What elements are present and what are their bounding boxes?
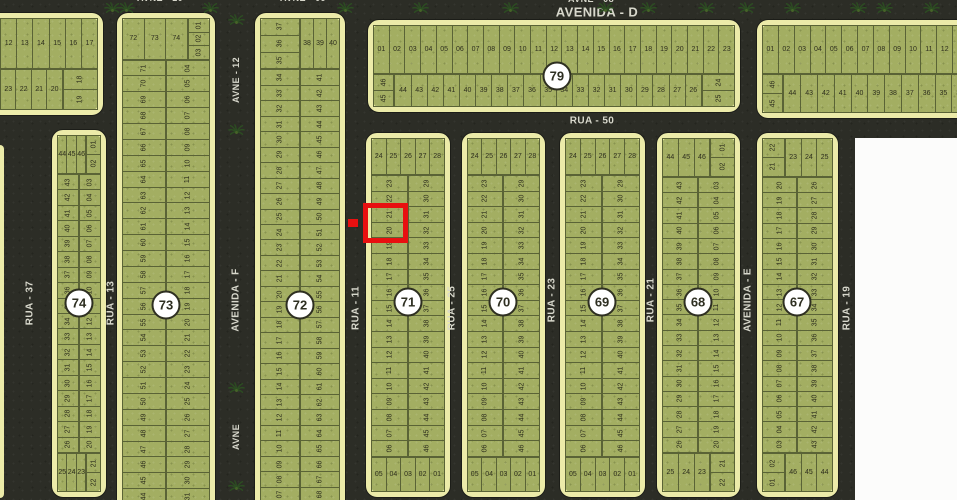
lot-cell[interactable]: 02	[416, 458, 431, 491]
lot-cell[interactable]: 17	[699, 392, 734, 407]
lot-cell[interactable]: 07	[372, 426, 407, 442]
lot-cell[interactable]: 20	[672, 26, 688, 73]
lot-cell[interactable]: 12	[699, 315, 734, 330]
lot-cell[interactable]: 26	[798, 178, 832, 193]
lot-cell[interactable]: 13	[261, 395, 299, 410]
lot-cell[interactable]: 29	[663, 392, 697, 407]
lot-cell[interactable]: 45	[763, 94, 782, 112]
lot-cell[interactable]: 12	[468, 348, 502, 364]
lot-cell[interactable]: 15	[167, 235, 209, 251]
lot-cell[interactable]: 18	[64, 70, 97, 90]
lot-cell[interactable]: 46	[374, 75, 393, 91]
lot-cell[interactable]: 26	[261, 194, 299, 209]
lot-cell[interactable]: 27	[663, 422, 697, 437]
lot-cell[interactable]: 21	[688, 26, 704, 73]
lot-cell[interactable]: 12	[566, 348, 601, 364]
lot-cell[interactable]: 34	[663, 315, 697, 330]
lot-cell[interactable]: 11	[763, 315, 796, 330]
lot-cell[interactable]: 22	[704, 26, 720, 73]
lot-cell[interactable]: 41	[663, 208, 697, 223]
lot-cell[interactable]: 02	[763, 454, 784, 473]
lot-cell[interactable]: 43	[504, 394, 539, 410]
lot-cell[interactable]: 03	[596, 458, 611, 491]
lot-cell[interactable]: 44	[504, 410, 539, 426]
lot-cell[interactable]: 39	[663, 239, 697, 254]
lot-cell[interactable]: 28	[663, 407, 697, 422]
lot-cell[interactable]: 46	[504, 441, 539, 456]
lot-cell[interactable]: 11	[167, 172, 209, 188]
lot-cell[interactable]: 31	[504, 207, 539, 223]
lot-cell[interactable]: 18	[641, 26, 657, 73]
lot-cell[interactable]: 49	[123, 410, 165, 426]
lot-cell[interactable]: 14	[80, 345, 100, 360]
lot-cell[interactable]: 17	[372, 270, 407, 286]
lot-cell[interactable]: 23	[1, 70, 16, 109]
lot-cell[interactable]: 16	[699, 377, 734, 392]
lot-cell[interactable]: 28	[430, 139, 444, 174]
lot-cell[interactable]: 42	[798, 422, 832, 437]
lot-cell[interactable]: 13	[699, 331, 734, 346]
lot-cell[interactable]: 45	[409, 426, 444, 442]
lot-cell[interactable]: 31	[663, 361, 697, 376]
lot-cell[interactable]: 45	[504, 426, 539, 442]
lot-cell[interactable]: 64	[301, 426, 339, 441]
lot-cell[interactable]: 07	[858, 26, 874, 73]
lot-cell[interactable]: 45	[374, 91, 393, 106]
lot-cell[interactable]: 32	[58, 345, 78, 360]
lot-cell[interactable]: 31	[167, 489, 209, 500]
lot-cell[interactable]: 18	[468, 254, 502, 270]
lot-cell[interactable]: 48	[301, 179, 339, 194]
lot-cell[interactable]: 03	[795, 26, 811, 73]
lot-cell[interactable]: 09	[372, 394, 407, 410]
lot-cell[interactable]: 41	[409, 363, 444, 379]
lot-cell[interactable]: 27	[798, 193, 832, 208]
lot-cell[interactable]: 17	[261, 333, 299, 348]
lot-cell[interactable]: 06	[842, 26, 858, 73]
lot-cell[interactable]: 05	[167, 76, 209, 92]
lot-cell[interactable]: 28	[798, 208, 832, 223]
lot-cell[interactable]: 09	[261, 457, 299, 472]
lot-cell[interactable]: 27	[58, 422, 78, 437]
lot-cell[interactable]: 44	[395, 75, 411, 106]
lot-cell[interactable]: 44	[784, 75, 801, 112]
lot-cell[interactable]: 02	[87, 155, 100, 173]
lot-cell[interactable]: 73	[145, 19, 167, 59]
lot-cell[interactable]: 34	[603, 254, 639, 270]
lot-cell[interactable]: 15	[80, 360, 100, 375]
lot-cell[interactable]: 26	[167, 410, 209, 426]
lot-cell[interactable]: 01	[87, 136, 100, 155]
lot-cell[interactable]: 21	[763, 158, 784, 176]
lot-cell[interactable]: 03	[763, 438, 796, 452]
lot-cell[interactable]: 11	[531, 26, 547, 73]
lot-cell[interactable]: 20	[80, 438, 100, 452]
lot-cell[interactable]: 05	[372, 458, 387, 491]
lot-cell[interactable]: 21	[167, 330, 209, 346]
lot-cell[interactable]: 44	[58, 136, 67, 173]
lot-cell[interactable]: 57	[301, 318, 339, 333]
lot-cell[interactable]: 19	[699, 422, 734, 437]
lot-cell[interactable]: 14	[578, 26, 594, 73]
lot-cell[interactable]: 36	[919, 75, 936, 112]
lot-cell[interactable]: 70	[123, 76, 165, 92]
lot-cell[interactable]: 08	[468, 410, 502, 426]
lot-cell[interactable]: 42	[663, 193, 697, 208]
lot-cell[interactable]: 45	[603, 426, 639, 442]
lot-cell[interactable]: 10	[167, 156, 209, 172]
lot-cell[interactable]: 22	[261, 256, 299, 271]
lot-cell[interactable]: 18	[261, 318, 299, 333]
lot-cell[interactable]: 12	[167, 188, 209, 204]
lot-cell[interactable]: 10	[515, 26, 531, 73]
lot-cell[interactable]: 39	[409, 332, 444, 348]
lot-cell[interactable]: 30	[261, 132, 299, 147]
lot-cell[interactable]: 02	[189, 33, 209, 47]
lot-cell[interactable]: 03	[80, 175, 100, 190]
lot-cell[interactable]: 24	[679, 454, 695, 491]
lot-cell[interactable]: 03	[699, 178, 734, 193]
lot-cell[interactable]: 46	[695, 139, 710, 176]
lot-cell[interactable]: 07	[468, 26, 484, 73]
lot-cell[interactable]: 05	[437, 26, 453, 73]
lot-cell[interactable]: 05	[699, 208, 734, 223]
lot-cell[interactable]: 02	[779, 26, 795, 73]
lot-cell[interactable]: 42	[603, 379, 639, 395]
lot-cell[interactable]: 59	[301, 349, 339, 364]
lot-cell[interactable]: 32	[409, 223, 444, 239]
lot-cell[interactable]: 40	[460, 75, 476, 106]
lot-cell[interactable]: 12	[937, 26, 953, 73]
lot-cell[interactable]: 37	[261, 19, 299, 36]
lot-cell[interactable]: 68	[123, 108, 165, 124]
lot-cell[interactable]: 42	[301, 86, 339, 101]
lot-cell[interactable]: 39	[314, 19, 327, 68]
lot-cell[interactable]: 18	[372, 254, 407, 270]
lot-cell[interactable]: 07	[763, 377, 796, 392]
lot-cell[interactable]: 32	[603, 223, 639, 239]
lot-cell[interactable]: 13	[468, 332, 502, 348]
lot-cell[interactable]: 39	[58, 237, 78, 252]
lot-cell[interactable]: 07	[167, 108, 209, 124]
lot-cell[interactable]: 14	[33, 19, 49, 68]
lot-cell[interactable]: 07	[261, 488, 299, 500]
lot-cell[interactable]: 45	[802, 454, 818, 491]
lot-cell[interactable]: 20	[47, 70, 61, 109]
lot-cell[interactable]: 08	[874, 26, 890, 73]
lot-cell[interactable]: 25	[581, 139, 596, 174]
lot-cell[interactable]: 74	[166, 19, 187, 59]
lot-cell[interactable]: 25	[58, 454, 67, 491]
lot-cell[interactable]: 23	[719, 26, 734, 73]
lot-cell[interactable]: 06	[372, 441, 407, 456]
lot-cell[interactable]: 29	[798, 224, 832, 239]
lot-cell[interactable]: 35	[261, 53, 299, 69]
lot-cell[interactable]: 42	[428, 75, 444, 106]
lot-cell[interactable]: 37	[508, 75, 524, 106]
lot-cell[interactable]: 18	[566, 254, 601, 270]
lot-cell[interactable]: 31	[58, 360, 78, 375]
lot-cell[interactable]: 45	[67, 136, 76, 173]
lot-cell[interactable]: 28	[167, 442, 209, 458]
lot-cell[interactable]: 23	[372, 176, 407, 192]
lot-cell[interactable]: 31	[798, 254, 832, 269]
lot-cell[interactable]: 17	[80, 391, 100, 406]
lot-cell[interactable]: 41	[58, 206, 78, 221]
lot-cell[interactable]: 35	[409, 270, 444, 286]
lot-cell[interactable]: 21	[87, 454, 100, 473]
lot-cell[interactable]: 01	[763, 26, 779, 73]
lot-cell[interactable]: 37	[902, 75, 919, 112]
lot-cell[interactable]: 21	[566, 207, 601, 223]
lot-cell[interactable]: 53	[123, 346, 165, 362]
lot-cell[interactable]: 46	[603, 441, 639, 456]
lot-cell[interactable]: 08	[484, 26, 500, 73]
lot-cell[interactable]: 53	[301, 256, 339, 271]
lot-cell[interactable]: 43	[801, 75, 818, 112]
lot-cell[interactable]: 24	[802, 139, 818, 176]
lot-cell[interactable]: 33	[261, 86, 299, 101]
lot-cell[interactable]: 03	[189, 46, 209, 59]
lot-cell[interactable]: 27	[261, 179, 299, 194]
lot-cell[interactable]: 54	[123, 330, 165, 346]
lot-cell[interactable]: 27	[416, 139, 431, 174]
lot-cell[interactable]: 21	[468, 207, 502, 223]
lot-cell[interactable]: 54	[301, 271, 339, 286]
lot-cell[interactable]: 61	[301, 380, 339, 395]
lot-cell[interactable]: 25	[817, 139, 832, 176]
lot-cell[interactable]: 34	[261, 70, 299, 85]
lot-cell[interactable]: 63	[123, 188, 165, 204]
lot-cell[interactable]: 18	[763, 208, 796, 223]
lot-cell[interactable]: 04	[421, 26, 437, 73]
lot-cell[interactable]: 30	[409, 192, 444, 208]
lot-cell[interactable]: 43	[798, 438, 832, 452]
lot-cell[interactable]: 19	[80, 422, 100, 437]
lot-cell[interactable]: 42	[58, 190, 78, 205]
lot-cell[interactable]: 52	[123, 362, 165, 378]
lot-cell[interactable]: 35	[504, 270, 539, 286]
lot-cell[interactable]: 37	[798, 346, 832, 361]
lot-cell[interactable]: 52	[301, 240, 339, 255]
lot-cell[interactable]: 24	[261, 225, 299, 240]
lot-cell[interactable]: 34	[409, 254, 444, 270]
lot-cell[interactable]: 38	[492, 75, 508, 106]
lot-cell[interactable]: 03	[405, 26, 421, 73]
lot-cell[interactable]: 50	[123, 394, 165, 410]
lot-cell[interactable]: 35	[603, 270, 639, 286]
lot-cell[interactable]: 09	[763, 346, 796, 361]
lot-cell[interactable]: 64	[123, 172, 165, 188]
lot-cell[interactable]: 25	[703, 91, 734, 106]
lot-cell[interactable]: 40	[603, 348, 639, 364]
lot-cell[interactable]: 67	[301, 472, 339, 487]
lot-cell[interactable]: 50	[301, 210, 339, 225]
lot-cell[interactable]: 27	[511, 139, 525, 174]
lot-cell[interactable]: 05	[763, 407, 796, 422]
lot-cell[interactable]: 43	[412, 75, 428, 106]
lot-cell[interactable]: 41	[444, 75, 460, 106]
lot-cell[interactable]: 22	[16, 70, 31, 109]
lot-cell[interactable]: 28	[526, 139, 539, 174]
lot-cell[interactable]: 39	[868, 75, 885, 112]
lot-cell[interactable]: 07	[468, 426, 502, 442]
lot-cell[interactable]: 40	[504, 348, 539, 364]
lot-cell[interactable]: 43	[409, 394, 444, 410]
lot-cell[interactable]: 06	[699, 224, 734, 239]
lot-cell[interactable]: 67	[123, 124, 165, 140]
lot-cell[interactable]: 10	[261, 441, 299, 456]
lot-cell[interactable]: 05	[826, 26, 842, 73]
lot-cell[interactable]: 45	[123, 473, 165, 489]
lot-cell[interactable]: 33	[58, 329, 78, 344]
lot-cell[interactable]: 30	[621, 75, 637, 106]
lot-cell[interactable]: 38	[885, 75, 902, 112]
lot-cell[interactable]: 06	[453, 26, 469, 73]
lot-cell[interactable]: 07	[80, 237, 100, 252]
lot-cell[interactable]: 23	[261, 240, 299, 255]
lot-cell[interactable]: 43	[603, 394, 639, 410]
lot-cell[interactable]: 08	[372, 410, 407, 426]
lot-cell[interactable]: 02	[390, 26, 406, 73]
lot-cell[interactable]: 44	[409, 410, 444, 426]
lot-cell[interactable]: 44	[603, 410, 639, 426]
lot-cell[interactable]: 22	[167, 346, 209, 362]
lot-cell[interactable]: 71	[123, 61, 165, 77]
lot-cell[interactable]: 41	[835, 75, 852, 112]
lot-cell[interactable]: 19	[657, 26, 673, 73]
lot-cell[interactable]: 47	[123, 442, 165, 458]
lot-cell[interactable]: 04	[763, 422, 796, 437]
lot-cell[interactable]: 23	[786, 139, 802, 176]
lot-cell[interactable]: 51	[301, 225, 339, 240]
lot-cell[interactable]: 09	[699, 270, 734, 285]
lot-cell[interactable]: 09	[890, 26, 906, 73]
lot-cell[interactable]: 41	[798, 407, 832, 422]
lot-cell[interactable]: 59	[123, 251, 165, 267]
lot-cell[interactable]: 03	[401, 458, 416, 491]
lot-cell[interactable]: 05	[468, 458, 482, 491]
lot-cell[interactable]: 13	[167, 203, 209, 219]
lot-cell[interactable]: 66	[123, 140, 165, 156]
lot-cell[interactable]: 06	[468, 441, 502, 456]
lot-cell[interactable]: 33	[573, 75, 589, 106]
lot-cell[interactable]: 40	[409, 348, 444, 364]
lot-cell[interactable]: 17	[625, 26, 641, 73]
lot-cell[interactable]: 15	[594, 26, 610, 73]
lot-cell[interactable]: 16	[763, 239, 796, 254]
lot-cell[interactable]: 14	[372, 316, 407, 332]
lot-cell[interactable]: 38	[301, 19, 314, 68]
lot-cell[interactable]: 08	[699, 254, 734, 269]
lot-cell[interactable]: 24	[566, 139, 581, 174]
lot-cell[interactable]: 14	[468, 316, 502, 332]
lot-cell[interactable]: 21	[261, 271, 299, 286]
lot-cell[interactable]: 51	[123, 378, 165, 394]
lot-cell[interactable]: 32	[261, 101, 299, 116]
lot-cell[interactable]: 48	[123, 426, 165, 442]
lot-cell[interactable]: 06	[167, 92, 209, 108]
lot-cell[interactable]: 36	[261, 36, 299, 53]
lot-cell[interactable]: 18	[699, 407, 734, 422]
lot-cell[interactable]: 16	[610, 26, 626, 73]
lot-cell[interactable]: 11	[468, 363, 502, 379]
lot-cell[interactable]: 19	[64, 90, 97, 109]
lot-cell[interactable]: 21	[711, 454, 734, 473]
lot-cell[interactable]: 14	[566, 316, 601, 332]
lot-cell[interactable]: 65	[301, 441, 339, 456]
lot-cell[interactable]: 01	[189, 19, 209, 33]
lot-cell[interactable]: 02	[711, 158, 734, 176]
lot-cell[interactable]: 19	[566, 238, 601, 254]
lot-cell[interactable]: 46	[786, 454, 802, 491]
lot-cell[interactable]: 13	[953, 26, 957, 73]
lot-cell[interactable]: 58	[123, 267, 165, 283]
lot-cell[interactable]: 44	[301, 117, 339, 132]
lot-cell[interactable]: 10	[372, 379, 407, 395]
lot-cell[interactable]: 60	[123, 235, 165, 251]
lot-cell[interactable]: 41	[603, 363, 639, 379]
lot-cell[interactable]: 66	[301, 457, 339, 472]
lot-cell[interactable]: 06	[80, 221, 100, 236]
lot-cell[interactable]: 25	[167, 394, 209, 410]
lot-cell[interactable]: 22	[87, 473, 100, 491]
lot-cell[interactable]: 33	[504, 238, 539, 254]
lot-cell[interactable]: 30	[167, 473, 209, 489]
lot-cell[interactable]: 14	[763, 270, 796, 285]
lot-cell[interactable]: 37	[663, 270, 697, 285]
lot-cell[interactable]: 38	[504, 316, 539, 332]
lot-cell[interactable]: 17	[566, 270, 601, 286]
lot-cell[interactable]: 04	[581, 458, 596, 491]
lot-cell[interactable]: 31	[605, 75, 621, 106]
lot-cell[interactable]: 26	[596, 139, 611, 174]
lot-cell[interactable]: 39	[504, 332, 539, 348]
lot-cell[interactable]: 30	[504, 192, 539, 208]
lot-cell[interactable]: 12	[261, 410, 299, 425]
lot-cell[interactable]: 15	[261, 364, 299, 379]
lot-cell[interactable]: 40	[327, 19, 339, 68]
lot-cell[interactable]: 13	[372, 332, 407, 348]
lot-cell[interactable]: 27	[670, 75, 686, 106]
lot-cell[interactable]: 39	[798, 377, 832, 392]
lot-cell[interactable]: 04	[482, 458, 496, 491]
lot-cell[interactable]: 06	[566, 441, 601, 456]
lot-cell[interactable]: 11	[566, 363, 601, 379]
lot-cell[interactable]: 09	[468, 394, 502, 410]
lot-cell[interactable]: 28	[653, 75, 669, 106]
lot-cell[interactable]: 32	[504, 223, 539, 239]
lot-cell[interactable]: 07	[566, 426, 601, 442]
lot-cell[interactable]: 22	[468, 192, 502, 208]
lot-cell[interactable]: 07	[699, 239, 734, 254]
lot-cell[interactable]: 17	[763, 224, 796, 239]
lot-cell[interactable]: 01	[763, 473, 784, 491]
lot-cell[interactable]: 08	[763, 361, 796, 376]
lot-cell[interactable]: 14	[261, 380, 299, 395]
lot-cell[interactable]: 26	[58, 438, 78, 452]
lot-cell[interactable]: 18	[80, 407, 100, 422]
lot-cell[interactable]: 43	[663, 178, 697, 193]
lot-cell[interactable]: 63	[301, 410, 339, 425]
lot-cell[interactable]: 16	[261, 349, 299, 364]
lot-cell[interactable]: 28	[625, 139, 639, 174]
lot-cell[interactable]: 33	[603, 238, 639, 254]
lot-cell[interactable]: 20	[566, 223, 601, 239]
lot-cell[interactable]: 46	[301, 148, 339, 163]
lot-cell[interactable]: 10	[566, 379, 601, 395]
lot-cell[interactable]: 29	[409, 176, 444, 192]
